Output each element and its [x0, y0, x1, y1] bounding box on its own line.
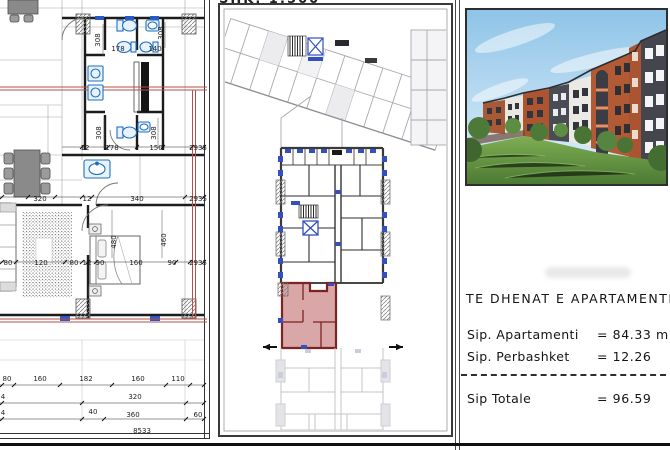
chair: [41, 153, 50, 164]
divider-line: [455, 0, 456, 450]
svg-text:308: 308: [150, 126, 158, 139]
stair-icon: [299, 205, 318, 218]
washing-machine-icon: [88, 66, 103, 81]
svg-text:110: 110: [171, 375, 184, 383]
svg-text:80: 80: [70, 259, 79, 267]
chair: [4, 153, 13, 164]
apartment-area-value: = 84.33 m: [597, 327, 669, 342]
svg-text:480: 480: [110, 235, 118, 248]
svg-text:460: 460: [160, 233, 168, 246]
svg-text:160: 160: [129, 259, 142, 267]
elevator-icon: [308, 38, 323, 61]
elevator-icon: [303, 221, 318, 235]
living-furniture: [0, 203, 140, 298]
svg-text:90: 90: [96, 259, 105, 267]
sink-icon: [138, 122, 150, 132]
svg-text:120: 120: [34, 259, 47, 267]
total-area-value: = 96.59: [597, 391, 651, 406]
common-area-value: = 12.26: [597, 349, 651, 364]
building-render-image: [465, 8, 668, 186]
chair: [4, 168, 13, 179]
total-area-label: Sip Totale: [467, 391, 597, 406]
key-plan: [215, 0, 460, 450]
svg-text:12: 12: [83, 259, 92, 267]
divider-line: [459, 0, 460, 450]
svg-text:140: 140: [148, 45, 161, 53]
svg-text:178: 178: [111, 45, 124, 53]
svg-text:12: 12: [81, 144, 90, 152]
svg-text:150: 150: [149, 144, 162, 152]
svg-text:308: 308: [94, 33, 102, 46]
apartment-data-title: TE DHENAT E APARTAMENTIT: [466, 291, 670, 306]
chair: [10, 15, 19, 22]
chair: [41, 183, 50, 194]
floor-plan: 3083081781403083081217815029353201234029…: [0, 0, 212, 450]
svg-text:340: 340: [130, 195, 143, 203]
chair: [41, 168, 50, 179]
drawing-sheet: 3083081781403083081217815029353201234029…: [0, 0, 670, 450]
svg-text:178: 178: [105, 144, 118, 152]
key-plan-scale-label: SHK. 1:500: [219, 0, 320, 7]
dining-table: [14, 150, 40, 197]
svg-text:308: 308: [95, 126, 103, 139]
svg-text:8533: 8533: [133, 427, 151, 435]
sheet-bottom-border: [0, 443, 670, 446]
nightstand: [89, 224, 101, 234]
svg-text:160: 160: [131, 375, 144, 383]
artifact-smudge: [545, 267, 631, 278]
toilet-icon: [117, 20, 137, 31]
furniture: [4, 0, 50, 197]
chair: [24, 15, 33, 22]
svg-text:308: 308: [157, 26, 165, 39]
floor-plan-gridlines: [0, 0, 204, 422]
common-area-row: Sip. Perbashket = 12.26: [467, 349, 670, 364]
svg-text:320: 320: [128, 393, 141, 401]
table: [8, 0, 38, 14]
svg-text:320: 320: [33, 195, 46, 203]
toilet-icon: [117, 127, 137, 138]
total-area-row: Sip Totale = 96.59: [467, 391, 670, 406]
svg-text:4: 4: [1, 409, 6, 417]
apartment-area-row: Sip. Apartamenti = 84.33 m: [467, 327, 670, 342]
svg-text:40: 40: [89, 408, 98, 416]
svg-text:80: 80: [3, 375, 12, 383]
apartment-area-label: Sip. Apartamenti: [467, 327, 597, 342]
chair: [4, 183, 13, 194]
svg-text:60: 60: [194, 411, 203, 419]
svg-text:2935: 2935: [189, 259, 207, 267]
common-area-label: Sip. Perbashket: [467, 349, 597, 364]
svg-text:182: 182: [79, 375, 92, 383]
svg-text:12: 12: [83, 195, 92, 203]
dashed-divider: [461, 374, 670, 376]
svg-text:360: 360: [126, 411, 139, 419]
washing-machine-icon: [88, 85, 103, 100]
nightstand: [89, 286, 101, 296]
stair-icon: [288, 36, 306, 56]
svg-text:2935: 2935: [189, 195, 207, 203]
svg-text:90: 90: [168, 259, 177, 267]
svg-text:2935: 2935: [189, 144, 207, 152]
vanity-sink-icon: [84, 160, 110, 178]
svg-text:80: 80: [4, 259, 13, 267]
svg-text:4: 4: [1, 393, 6, 401]
svg-text:160: 160: [33, 375, 46, 383]
highlighted-apartment: [278, 283, 336, 349]
